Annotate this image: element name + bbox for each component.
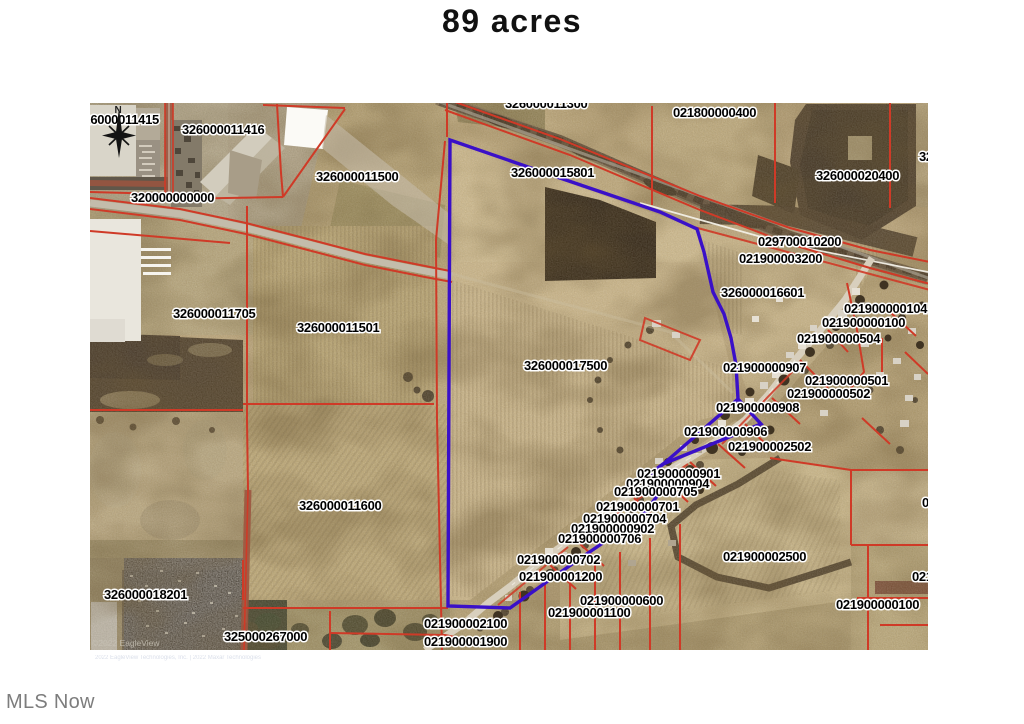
svg-text:326000011501: 326000011501 [297, 320, 380, 335]
svg-text:325000267000: 325000267000 [224, 629, 307, 644]
svg-text:326000016601: 326000016601 [721, 285, 804, 300]
svg-text:029700010200: 029700010200 [758, 234, 841, 249]
svg-text:021900000908: 021900000908 [716, 400, 799, 415]
svg-text:©2022 EagleView: ©2022 EagleView [92, 638, 160, 648]
svg-text:326000017500: 326000017500 [524, 358, 607, 373]
svg-text:021900000907: 021900000907 [723, 360, 806, 375]
svg-text:021900001900: 021900001900 [424, 634, 507, 649]
svg-text:021900000100: 021900000100 [836, 597, 919, 612]
svg-text:021900000502: 021900000502 [787, 386, 870, 401]
svg-text:326000011705: 326000011705 [173, 306, 256, 321]
svg-text:021900002400: 021900002400 [922, 495, 1005, 510]
svg-text:326000011300: 326000011300 [505, 96, 588, 111]
svg-text:326000018201: 326000018201 [104, 587, 187, 602]
svg-text:021900003200: 021900003200 [739, 251, 822, 266]
svg-text:021900001200: 021900001200 [519, 569, 602, 584]
svg-text:021800000400: 021800000400 [673, 105, 756, 120]
svg-text:021900002502: 021900002502 [728, 439, 811, 454]
svg-text:021900000906: 021900000906 [684, 424, 767, 439]
svg-text:2022 EagleView Technologies, I: 2022 EagleView Technologies, Inc. | 2022… [95, 655, 261, 661]
svg-text:326000011416: 326000011416 [182, 122, 265, 137]
svg-text:326000011500: 326000011500 [316, 169, 399, 184]
svg-text:326000011600: 326000011600 [299, 498, 382, 513]
svg-text:326000015801: 326000015801 [511, 165, 594, 180]
svg-text:326000020300: 326000020300 [919, 149, 1002, 164]
svg-text:021900000705: 021900000705 [614, 484, 697, 499]
svg-text:320000000000: 320000000000 [131, 190, 214, 205]
svg-text:021900000104: 021900000104 [844, 301, 928, 316]
svg-text:326000020400: 326000020400 [816, 168, 899, 183]
svg-text:021900002100: 021900002100 [424, 616, 507, 631]
svg-text:021900002500: 021900002500 [723, 549, 806, 564]
svg-text:021900000706: 021900000706 [558, 531, 641, 546]
svg-text:021900001800: 021900001800 [912, 569, 995, 584]
svg-text:N: N [115, 105, 122, 116]
svg-text:021900000100: 021900000100 [822, 315, 905, 330]
svg-text:021900000504: 021900000504 [797, 331, 881, 346]
svg-text:021900001100: 021900001100 [548, 605, 631, 620]
svg-text:021900000702: 021900000702 [517, 552, 600, 567]
